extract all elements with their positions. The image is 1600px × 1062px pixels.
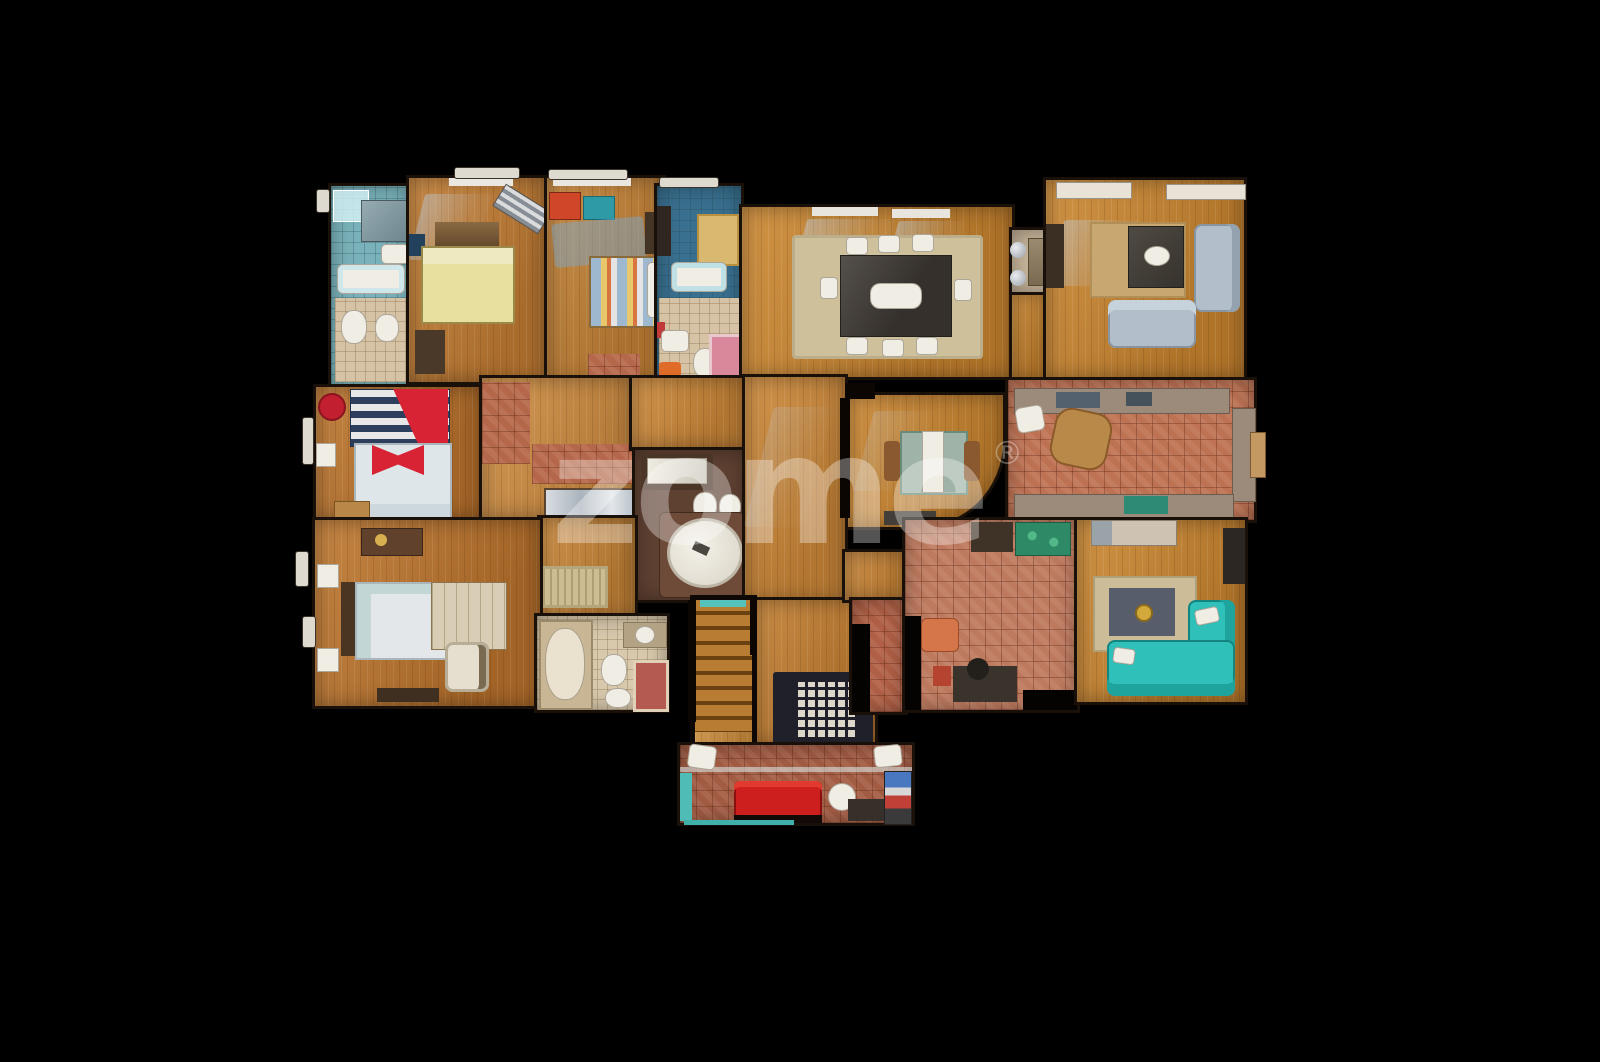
zome-watermark: zome® — [572, 406, 1002, 576]
hall-connector-east — [1012, 292, 1048, 380]
scan-shadow — [905, 616, 921, 710]
window-sill — [455, 168, 519, 178]
dining-room — [742, 207, 1012, 377]
balcony-step — [1250, 432, 1266, 478]
living-room — [1046, 180, 1244, 378]
sink — [661, 330, 689, 352]
red-sofa — [734, 781, 822, 819]
sofa-gray — [1194, 224, 1240, 312]
counter-top — [1014, 388, 1230, 414]
table-runner — [870, 283, 922, 309]
armchair — [445, 642, 489, 692]
dresser-decor-gold — [375, 534, 387, 546]
pouf-red — [318, 393, 346, 421]
registered-mark: ® — [991, 437, 1023, 469]
bedroom-bottom-left — [315, 520, 540, 706]
window-sill — [892, 209, 950, 218]
bathtub — [671, 262, 727, 292]
plant-table-green — [1015, 522, 1071, 556]
toilet — [341, 310, 367, 344]
family-room-wood — [1077, 520, 1245, 702]
window-sill — [317, 190, 329, 212]
dining-chair — [912, 234, 934, 252]
bathtub — [337, 264, 405, 294]
floorplan-scene: zome® — [0, 0, 1600, 1062]
sink — [381, 244, 409, 264]
bedroom-red — [316, 387, 482, 518]
scan-shadow — [1023, 690, 1077, 710]
terracotta-strip — [482, 382, 530, 464]
entry-threshold-teal — [684, 820, 794, 825]
nightstand — [317, 564, 339, 588]
sofa-pillow — [1112, 647, 1136, 666]
bench-dark — [377, 688, 439, 702]
cabinet-dark — [415, 330, 445, 374]
mirror-icon — [361, 200, 409, 242]
kitchen-chair — [1014, 404, 1046, 434]
window — [449, 178, 513, 186]
gold-lamp — [1135, 604, 1153, 622]
serving-tray — [1144, 246, 1170, 266]
striped-lounger — [492, 184, 552, 235]
dining-chair — [916, 337, 938, 355]
watermark-text: zome — [551, 415, 985, 567]
glass-block-grid — [795, 682, 857, 740]
window-sill — [303, 617, 315, 647]
wardrobe-cream — [431, 582, 507, 650]
media-wall — [1046, 224, 1064, 288]
staircase — [695, 600, 752, 768]
window-sill — [549, 170, 627, 179]
office-chair — [967, 658, 989, 680]
window-sill — [812, 207, 878, 216]
kitchen-table — [1047, 405, 1116, 474]
dresser — [361, 528, 423, 556]
cooktop — [1126, 392, 1152, 406]
bidet — [375, 314, 399, 342]
bar-stool — [1010, 242, 1026, 258]
bathroom-top-left — [331, 186, 411, 386]
red-bag — [933, 666, 951, 686]
entry-desk — [848, 799, 888, 821]
nightstand — [316, 443, 336, 467]
dining-chair — [820, 277, 838, 299]
teal-cabinet — [680, 773, 692, 821]
sink — [635, 626, 655, 644]
stove-teal — [1124, 496, 1168, 514]
desk-chair-red — [549, 192, 581, 220]
dining-chair — [846, 237, 868, 255]
tv-cabinet — [1223, 528, 1245, 584]
bed-headboard — [341, 582, 355, 656]
wicker-chair — [686, 743, 717, 771]
dining-chair — [954, 279, 972, 301]
loveseat-gray — [1108, 300, 1196, 348]
bathroom-top-center — [657, 186, 741, 386]
bedroom-yellow — [409, 178, 545, 382]
stair-tread-mat — [700, 600, 746, 607]
window-sill — [296, 552, 308, 586]
shower-tub — [545, 628, 585, 700]
entry-lounge — [680, 745, 912, 823]
toilet — [601, 654, 627, 686]
desk-teal — [583, 196, 615, 220]
rug-tan — [697, 214, 739, 266]
bar-stool — [1010, 270, 1026, 286]
shelf-dark — [657, 206, 671, 256]
colorful-shelf — [884, 771, 912, 825]
sink-dark — [1056, 392, 1100, 408]
window-sill — [660, 178, 718, 187]
kitchen — [1008, 380, 1254, 520]
dining-chair — [846, 337, 868, 355]
dining-chair — [882, 339, 904, 357]
wall-segment — [688, 600, 696, 722]
wicker-chair — [873, 744, 903, 769]
nightstand — [317, 648, 339, 672]
wall-segment — [845, 383, 875, 399]
console-table — [1166, 184, 1246, 200]
orange-armchair — [921, 618, 959, 652]
scan-shadow — [852, 624, 870, 712]
wall-segment — [750, 600, 757, 655]
dining-chair — [878, 235, 900, 253]
bedroom-striped — [547, 178, 663, 383]
tiled-passage — [852, 600, 905, 712]
bidet — [605, 688, 631, 708]
console-table — [1056, 182, 1132, 199]
bathroom-bottom — [537, 616, 667, 710]
window — [553, 178, 631, 186]
window-sill — [303, 418, 313, 464]
bench-gold — [334, 501, 370, 518]
rug-red — [633, 660, 669, 712]
double-bed-yellow — [421, 246, 515, 324]
hutch — [1091, 520, 1177, 546]
